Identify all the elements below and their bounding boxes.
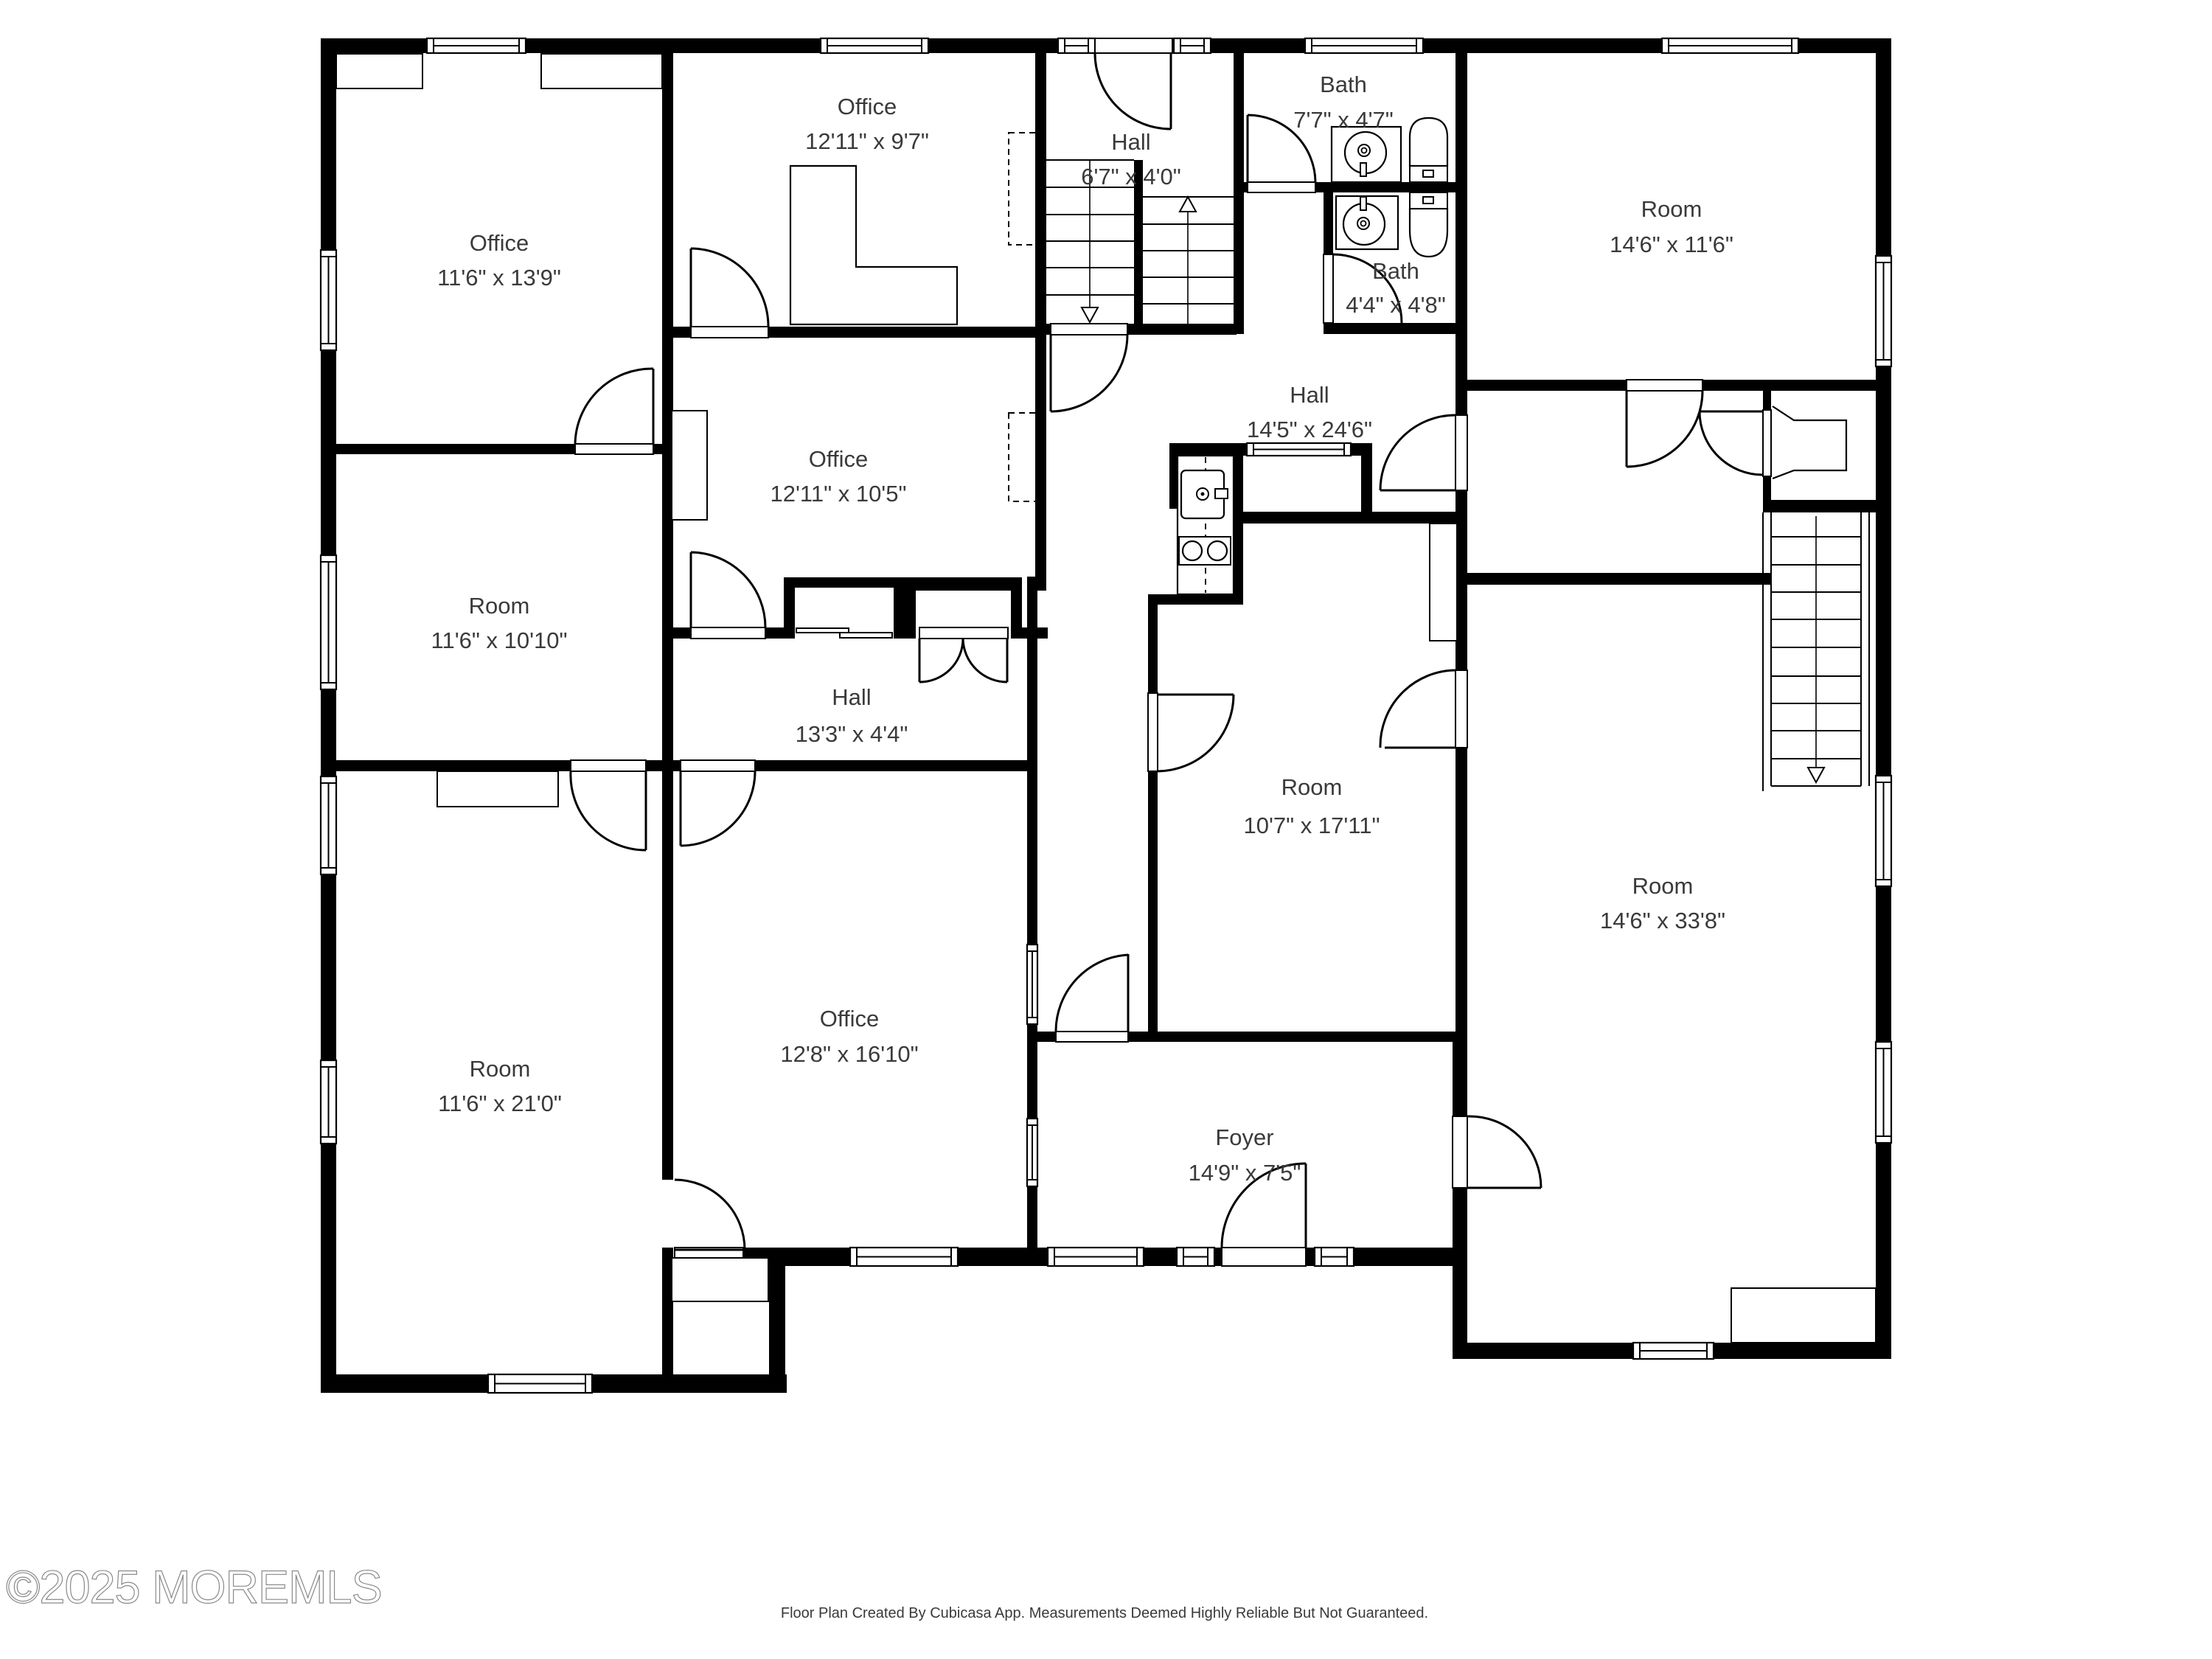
svg-text:6'7" x 4'0": 6'7" x 4'0" xyxy=(1081,164,1181,189)
svg-text:Bath: Bath xyxy=(1372,258,1419,284)
svg-text:11'6" x 13'9": 11'6" x 13'9" xyxy=(437,265,561,291)
svg-text:Room: Room xyxy=(469,593,530,619)
svg-text:Bath: Bath xyxy=(1320,72,1367,97)
svg-text:4'4" x 4'8": 4'4" x 4'8" xyxy=(1346,292,1446,318)
svg-text:11'6" x 10'10": 11'6" x 10'10" xyxy=(431,627,568,653)
svg-text:Room: Room xyxy=(1281,774,1343,800)
svg-text:Room: Room xyxy=(1641,196,1703,222)
svg-text:12'11" x 9'7": 12'11" x 9'7" xyxy=(805,128,929,154)
svg-text:Floor Plan Created By Cubicasa: Floor Plan Created By Cubicasa App. Meas… xyxy=(781,1605,1428,1621)
svg-text:Hall: Hall xyxy=(1290,382,1329,408)
svg-text:14'6" x 33'8": 14'6" x 33'8" xyxy=(1600,908,1725,933)
svg-text:Room: Room xyxy=(470,1056,531,1082)
svg-text:Office: Office xyxy=(820,1006,879,1032)
svg-text:Office: Office xyxy=(809,446,868,472)
svg-text:14'6" x 11'6": 14'6" x 11'6" xyxy=(1610,232,1733,257)
svg-text:Office: Office xyxy=(838,94,897,119)
svg-text:12'8" x 16'10": 12'8" x 16'10" xyxy=(780,1041,918,1067)
svg-text:12'11" x 10'5": 12'11" x 10'5" xyxy=(771,481,907,507)
svg-text:Hall: Hall xyxy=(1111,129,1150,155)
svg-text:7'7" x 4'7": 7'7" x 4'7" xyxy=(1293,107,1394,133)
svg-text:Office: Office xyxy=(470,230,529,256)
svg-text:10'7" x 17'11": 10'7" x 17'11" xyxy=(1244,813,1380,838)
svg-text:Room: Room xyxy=(1632,873,1694,899)
svg-text:11'6" x 21'0": 11'6" x 21'0" xyxy=(438,1091,562,1116)
svg-text:©2025 MOREMLS: ©2025 MOREMLS xyxy=(6,1562,382,1613)
svg-text:13'3" x 4'4": 13'3" x 4'4" xyxy=(796,721,908,747)
svg-text:Foyer: Foyer xyxy=(1215,1124,1273,1150)
svg-text:14'9" x 7'5": 14'9" x 7'5" xyxy=(1189,1160,1301,1186)
svg-text:Hall: Hall xyxy=(832,684,871,710)
svg-text:14'5" x 24'6": 14'5" x 24'6" xyxy=(1247,417,1372,442)
